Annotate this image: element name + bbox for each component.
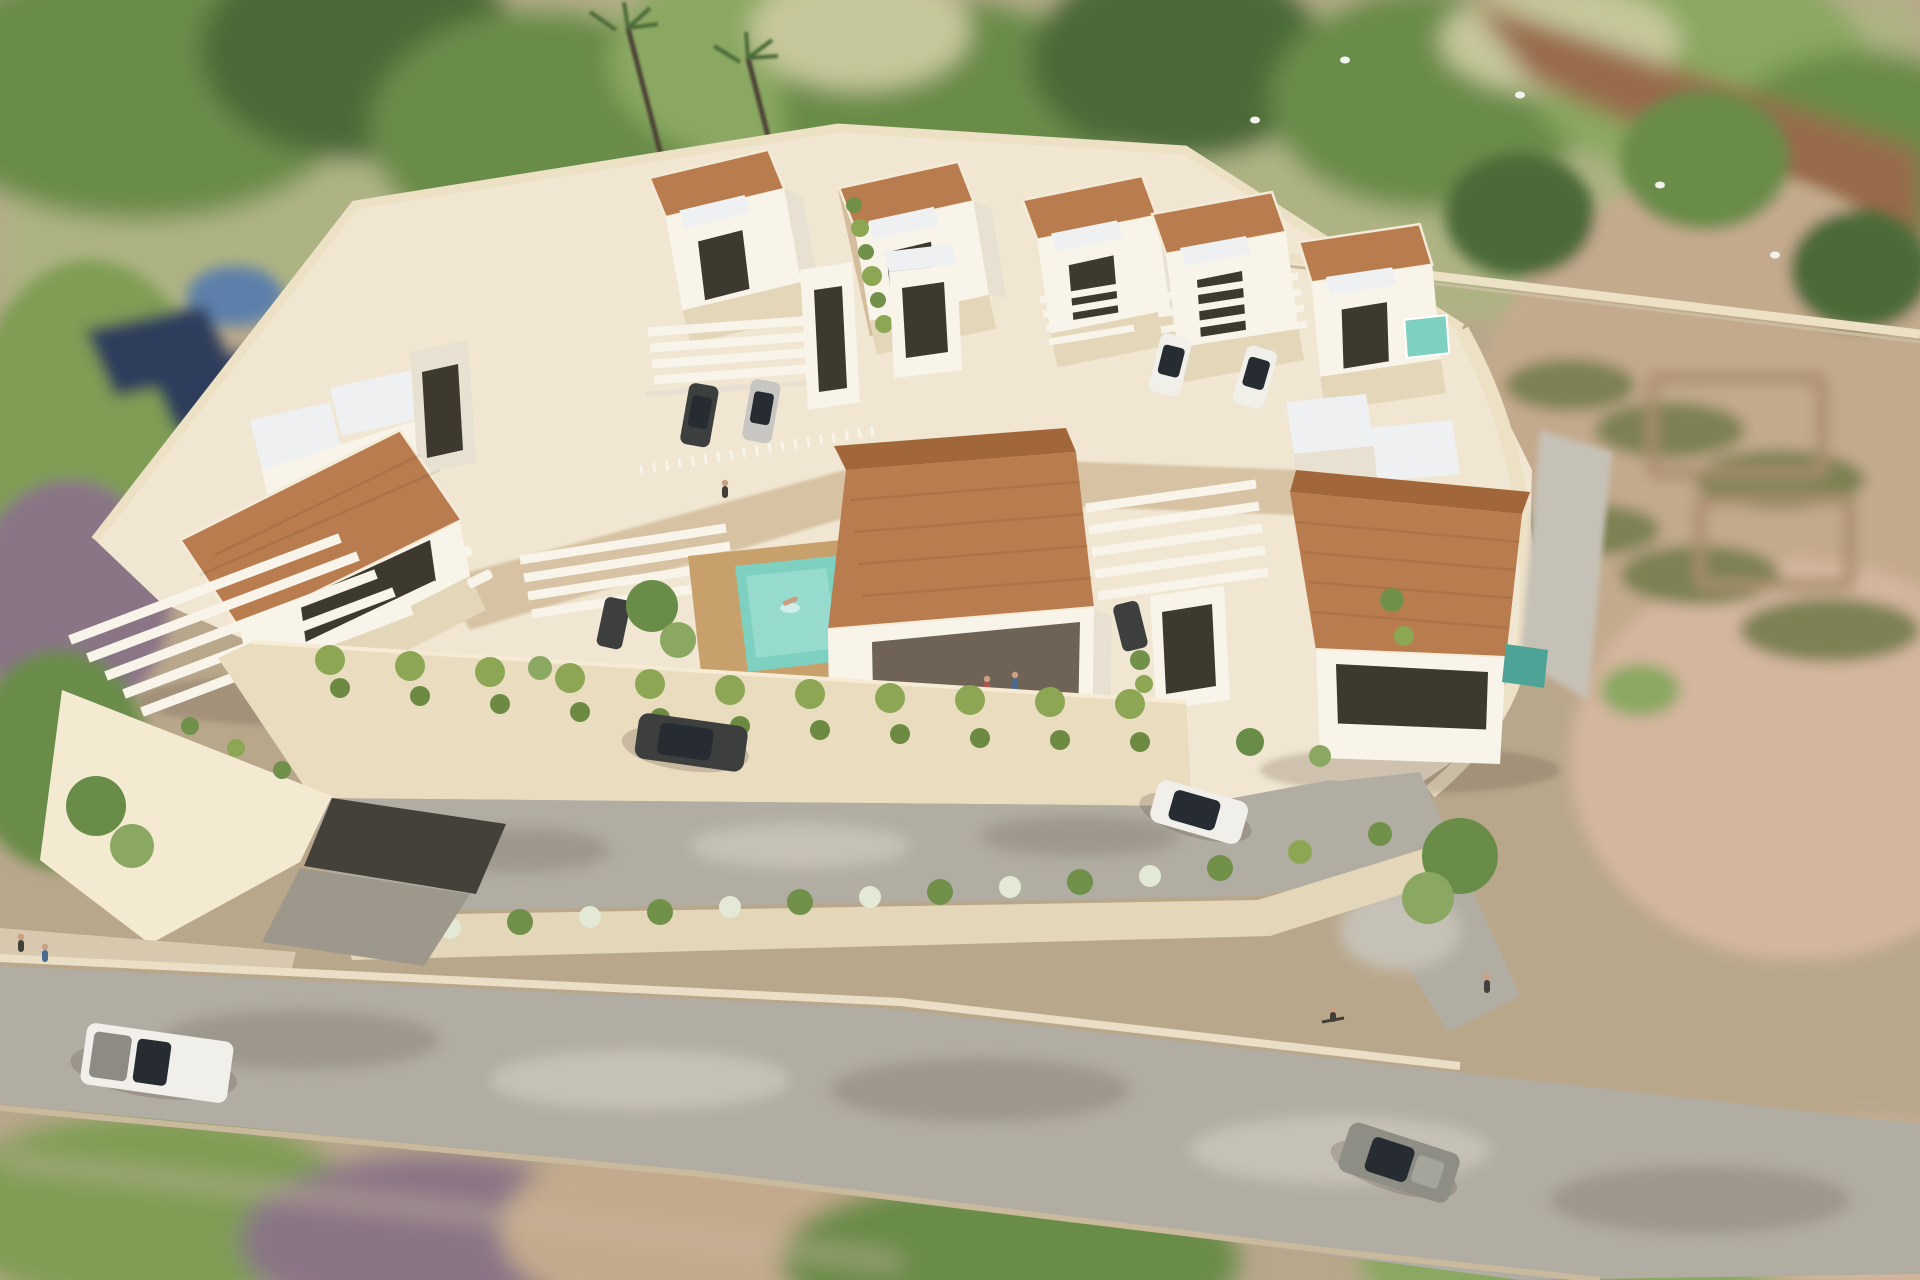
shrub (1309, 745, 1331, 767)
person-head (1484, 974, 1490, 980)
shrub (1394, 626, 1414, 646)
person-body (42, 950, 48, 962)
hedge-dot (875, 315, 893, 333)
tree-canopy (1620, 90, 1790, 230)
truck-bed (88, 1031, 132, 1082)
flowering-shrub (999, 876, 1021, 898)
bird (1515, 92, 1525, 99)
flowering-shrub (719, 896, 741, 918)
road-mottle (690, 824, 910, 868)
stair-glazing (814, 286, 847, 392)
balcony-recess (1336, 664, 1488, 732)
render-viewport: Bird's-eye architectural visualization: … (0, 0, 1920, 1280)
stair-glazing (1162, 604, 1216, 694)
road-mottle (1550, 1166, 1850, 1234)
person-body (1330, 1012, 1336, 1022)
road-mottle (830, 1058, 1130, 1122)
shrub (1600, 664, 1680, 716)
corner-tree (66, 776, 126, 836)
flowering-shrub (579, 906, 601, 928)
vine-cluster (875, 683, 905, 713)
vine-cluster (410, 686, 430, 706)
vine-cluster (955, 685, 985, 715)
vine-cluster (330, 678, 350, 698)
vine-cluster (1130, 732, 1150, 752)
road-mottle (490, 1050, 790, 1110)
shrub (1067, 869, 1093, 895)
courtyard-walker (722, 480, 728, 498)
person-head (18, 934, 24, 940)
hedge-dot (846, 197, 862, 213)
shrub (1236, 728, 1264, 756)
shrub (1368, 822, 1392, 846)
shrub (927, 879, 953, 905)
roof-front-slope (828, 452, 1094, 630)
person-body (1484, 980, 1490, 993)
vine-cluster (555, 663, 585, 693)
vine-cluster (1115, 689, 1145, 719)
shrub (181, 717, 199, 735)
shrub (528, 656, 552, 680)
aerial-render-illustration: Bird's-eye architectural visualization: … (0, 0, 1920, 1280)
shrub (787, 889, 813, 915)
core-roof-panel (1286, 394, 1374, 454)
shrub (1380, 588, 1404, 612)
flowering-shrub (859, 886, 881, 908)
bird (1655, 182, 1665, 189)
vine-cluster (795, 679, 825, 709)
vine-cluster (715, 675, 745, 705)
hedge-dot (851, 219, 869, 237)
person-head (722, 480, 728, 486)
box-window (902, 282, 948, 358)
stair-glazing (422, 364, 463, 458)
tree-canopy (1445, 153, 1595, 277)
garden-tree (660, 622, 696, 658)
corner-tree (110, 824, 154, 868)
shrub (507, 909, 533, 935)
shrub (227, 739, 245, 757)
pedestrian-2 (42, 944, 48, 962)
bird (930, 222, 940, 229)
vine-cluster (970, 728, 990, 748)
core-roof-panel (1368, 420, 1460, 482)
pool-shallow (746, 568, 838, 658)
gate-tree (1402, 872, 1454, 924)
bird (1250, 117, 1260, 124)
vine-cluster (1050, 730, 1070, 750)
person-head (984, 676, 990, 682)
shrub (647, 899, 673, 925)
shrub (1288, 840, 1312, 864)
side-plunge-pool (1502, 644, 1548, 688)
vine-cluster (315, 645, 345, 675)
balcony-window (1340, 301, 1391, 371)
hedge-dot (862, 266, 882, 286)
shrub-row (1505, 359, 1635, 411)
bird (1770, 252, 1780, 259)
vine-cluster (475, 657, 505, 687)
pedestrian-1 (18, 934, 24, 952)
balcony-window (697, 230, 749, 300)
balcony-person-blue (1012, 672, 1018, 690)
vine-cluster (635, 669, 665, 699)
shrub-row (1595, 402, 1745, 458)
hedge-dot (1130, 650, 1150, 670)
road-mottle (980, 816, 1180, 856)
hedge-dot (870, 292, 886, 308)
corner-plunge-pool (1403, 314, 1451, 360)
person-at-gate (1484, 974, 1490, 993)
hedge-dot (858, 244, 874, 260)
person-head (1012, 672, 1018, 678)
vine-cluster (570, 702, 590, 722)
person-body (1012, 678, 1018, 690)
shrub (1207, 855, 1233, 881)
pool-splash (780, 603, 800, 613)
bird (1340, 57, 1350, 64)
vine-cluster (395, 651, 425, 681)
shrub-row (1740, 598, 1920, 662)
flowering-shrub (1139, 865, 1161, 887)
shrub (273, 761, 291, 779)
hedge-dot (1135, 675, 1153, 693)
person-body (722, 486, 728, 498)
person-head (42, 944, 48, 950)
person-body (18, 940, 24, 952)
vine-cluster (1035, 687, 1065, 717)
vine-cluster (890, 724, 910, 744)
truck-cab-glass (132, 1038, 172, 1086)
vine-cluster (810, 720, 830, 740)
vine-cluster (490, 694, 510, 714)
